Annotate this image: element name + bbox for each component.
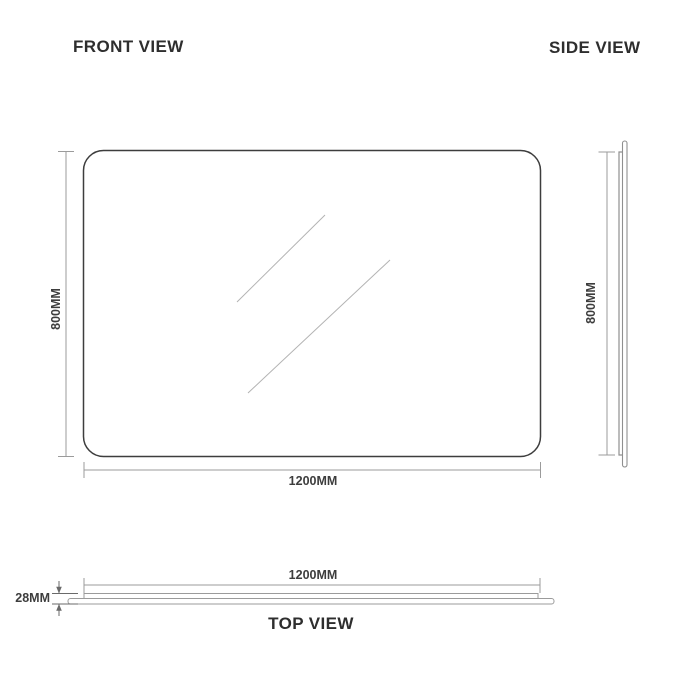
mirror-dimension-drawing: FRONT VIEW SIDE VIEW TOP VIEW 800MM 1200… bbox=[0, 0, 700, 700]
front-view-mirror-outline bbox=[84, 151, 541, 457]
drawing-linework bbox=[0, 0, 700, 700]
depth-arrow-down-icon bbox=[56, 587, 62, 594]
side-view-title: SIDE VIEW bbox=[549, 38, 640, 58]
top-view-back-panel-strip bbox=[84, 594, 538, 599]
top-view-title: TOP VIEW bbox=[236, 614, 386, 634]
side-height-dimension bbox=[599, 152, 616, 455]
front-height-dimension-label: 800MM bbox=[49, 279, 63, 339]
front-view-title: FRONT VIEW bbox=[73, 37, 184, 57]
top-view-mirror-strip bbox=[68, 599, 554, 605]
top-depth-dimension-label: 28MM bbox=[8, 591, 50, 605]
depth-arrow-up-icon bbox=[56, 604, 62, 611]
side-view-back-panel bbox=[623, 141, 628, 467]
side-height-dimension-label: 800MM bbox=[584, 273, 598, 333]
front-width-dimension-label: 1200MM bbox=[263, 474, 363, 488]
top-width-dimension-label: 1200MM bbox=[263, 568, 363, 582]
